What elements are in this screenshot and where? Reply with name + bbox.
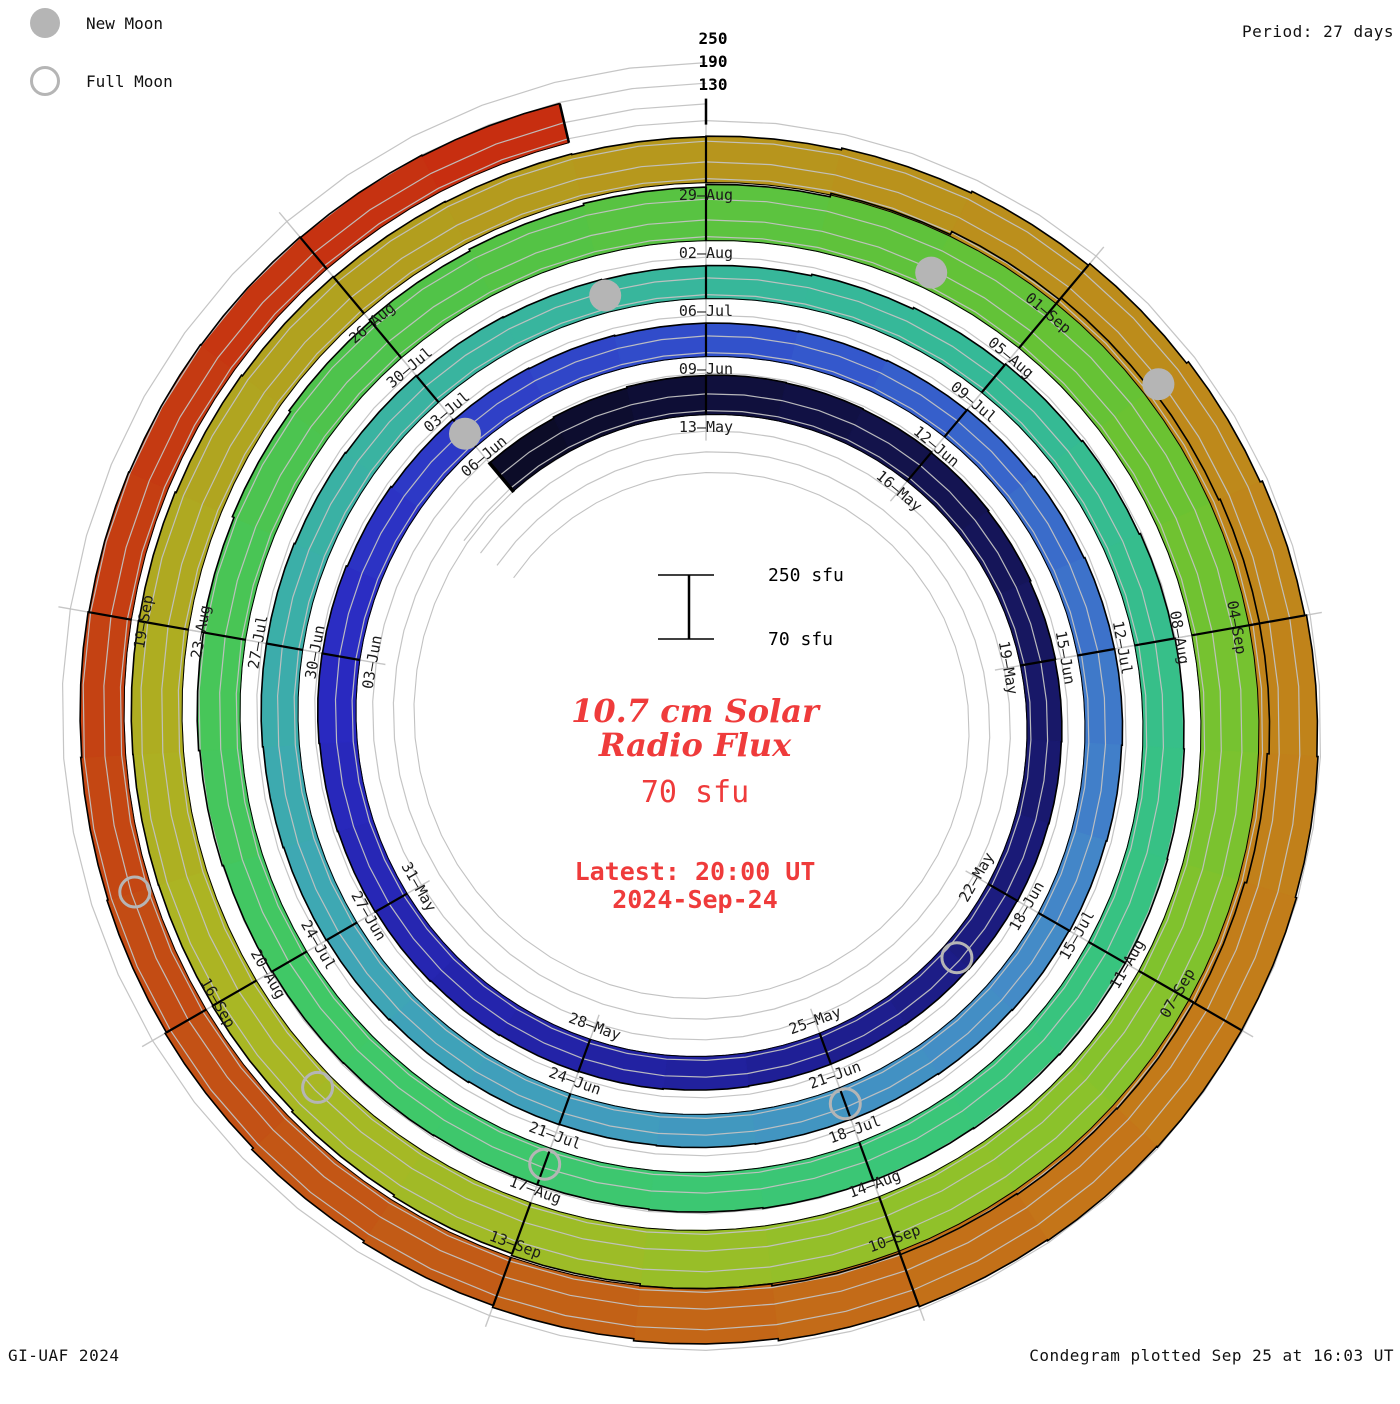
new-moon-marker xyxy=(449,418,481,450)
date-label: 29–Aug xyxy=(679,186,733,204)
flux-band-day xyxy=(1249,615,1317,757)
radial-scale-labels: 250190130 xyxy=(699,29,728,94)
flux-band-day xyxy=(263,745,318,848)
date-label: 06–Jul xyxy=(679,302,733,320)
date-label: 09–Jun xyxy=(679,360,733,378)
radial-scale-190: 190 xyxy=(699,52,728,71)
flux-band-day xyxy=(1127,746,1184,859)
chart-title-line1: 10.7 cm Solar xyxy=(571,692,821,730)
latest-date-label: 2024-Sep-24 xyxy=(612,885,778,914)
flux-band-day xyxy=(529,335,622,399)
flux-band-day xyxy=(640,1226,772,1289)
new-moon-marker xyxy=(915,257,947,289)
flux-band-day xyxy=(553,388,635,451)
chart-title-line2: Radio Flux xyxy=(598,726,792,764)
latest-time-label: Latest: 20:00 UT xyxy=(575,857,816,886)
radial-scale-130: 130 xyxy=(699,75,728,94)
flux-band-day xyxy=(791,331,887,391)
new-moon-marker xyxy=(589,280,621,312)
scale-bottom-label: 70 sfu xyxy=(768,629,833,650)
radial-scale-250: 250 xyxy=(699,29,728,48)
flux-band-day xyxy=(320,741,374,831)
condegram-spiral-svg: 13–May16–May19–May22–May25–May28–May31–M… xyxy=(0,0,1400,1400)
flux-band-day xyxy=(80,612,131,757)
new-moon-marker xyxy=(1142,368,1174,400)
condegram-page: { "header": { "period": "Period: 27 days… xyxy=(0,0,1400,1400)
scale-top-label: 250 sfu xyxy=(768,565,844,586)
current-flux-value: 70 sfu xyxy=(641,775,749,810)
flux-band-day xyxy=(200,748,262,866)
flux-band-day xyxy=(261,644,303,747)
center-annotations: 250 sfu70 sfu10.7 cm SolarRadio Flux70 s… xyxy=(571,565,844,914)
date-label: 13–May xyxy=(679,418,733,436)
date-label: 02–Aug xyxy=(679,244,733,262)
condegram-chart: 13–May16–May19–May22–May25–May28–May31–M… xyxy=(0,0,1400,1400)
flux-band-day xyxy=(706,375,786,421)
flux-band-day xyxy=(663,1053,749,1090)
flux-band-day xyxy=(490,418,571,491)
